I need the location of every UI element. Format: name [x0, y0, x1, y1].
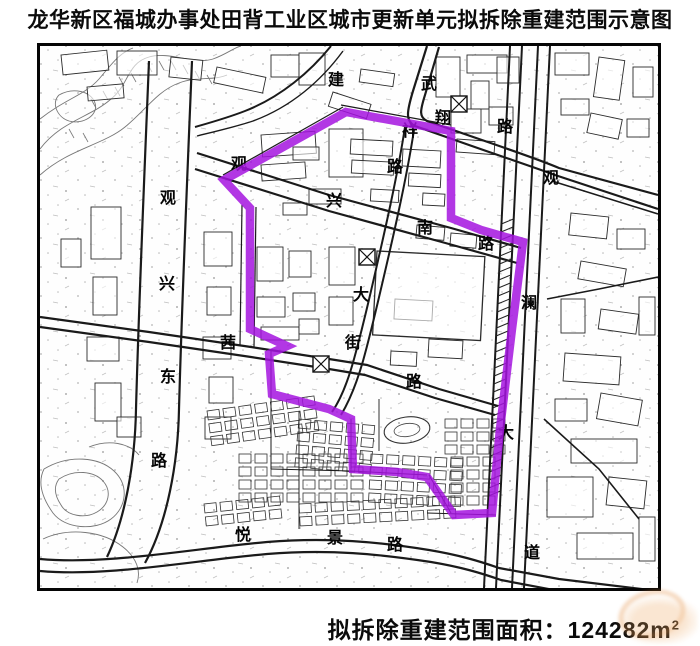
area-caption: 拟拆除重建范围面积：124282m2	[328, 611, 680, 645]
map-canvas: 建武翔路祥路观兴南路观澜大道观兴东路大街茜路悦景路	[40, 46, 658, 588]
street-label: 澜	[521, 293, 537, 312]
street-label: 街	[344, 333, 361, 352]
street-label: 观	[543, 169, 559, 187]
street-label: 悦	[235, 525, 251, 544]
map-frame: 建武翔路祥路观兴南路观澜大道观兴东路大街茜路悦景路	[37, 43, 661, 591]
street-label: 路	[406, 372, 423, 391]
street-label: 道	[524, 543, 540, 562]
street-label: 茜	[220, 333, 236, 352]
street-label: 建	[328, 71, 344, 89]
page-title: 龙华新区福城办事处田背工业区城市更新单元拟拆除重建范围示意图	[0, 4, 700, 34]
street-label: 武	[421, 74, 437, 93]
street-label: 路	[387, 535, 404, 554]
street-label: 大	[353, 285, 369, 304]
street-label: 景	[327, 529, 343, 547]
area-caption-label: 拟拆除重建范围面积：	[328, 617, 568, 643]
street-label: 兴	[326, 192, 342, 210]
street-label: 观	[160, 189, 176, 207]
street-label: 南	[417, 218, 433, 237]
street-label: 路	[497, 117, 514, 136]
street-label: 路	[151, 451, 168, 470]
street-label: 路	[387, 157, 404, 176]
street-label: 东	[160, 367, 176, 386]
street-label: 兴	[159, 275, 175, 293]
area-caption-value: 124282m	[568, 617, 672, 643]
area-caption-sup: 2	[672, 617, 680, 632]
